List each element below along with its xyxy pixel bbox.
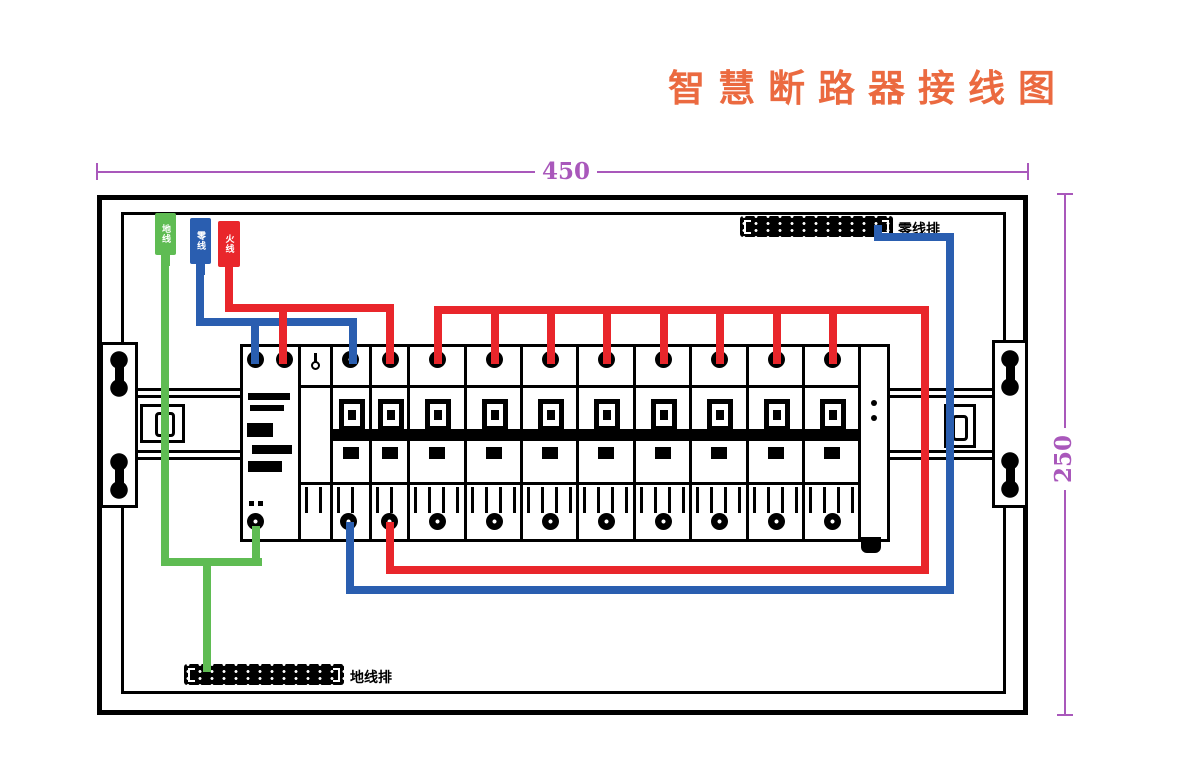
neutral-wire-segment xyxy=(946,233,954,594)
assembly-end-column xyxy=(861,347,887,539)
live-wire-segment xyxy=(225,304,394,312)
live-wire-segment xyxy=(921,306,929,574)
dimension-tick xyxy=(1057,193,1073,195)
label-print xyxy=(252,445,292,454)
live-wire-tag-label: 火线 xyxy=(225,234,234,254)
breaker-detail xyxy=(768,447,784,459)
dimension-tick xyxy=(1027,163,1029,180)
branch-breaker xyxy=(692,347,748,539)
neutral-wire-segment xyxy=(346,586,954,594)
breaker-toggle xyxy=(707,399,733,431)
live-bus-drop xyxy=(491,306,499,364)
ground-wire-tag: 地线 xyxy=(155,213,176,255)
wiring-diagram: 智慧断路器接线图 450 250 零线排 地线排 xyxy=(0,0,1181,780)
din-rail-right xyxy=(887,395,993,398)
seal-symbol xyxy=(314,353,317,362)
breaker-toggle xyxy=(764,399,790,431)
label-print xyxy=(248,393,290,400)
ground-wire-segment xyxy=(161,558,262,566)
label-print xyxy=(249,501,254,506)
breaker-detail xyxy=(598,447,614,459)
breaker-toggle xyxy=(425,399,451,431)
end-stop-hole xyxy=(952,415,968,441)
breaker-detail xyxy=(343,447,359,459)
ground-wire-tag-label: 地线 xyxy=(161,224,170,244)
din-rail-left xyxy=(137,450,241,453)
live-bus-drop xyxy=(603,306,611,364)
terminal-screw xyxy=(486,513,503,530)
breaker-detail xyxy=(429,447,445,459)
label-print xyxy=(258,501,263,506)
breaker-toggle xyxy=(378,399,404,431)
live-bus-segment xyxy=(434,306,929,314)
breaker-detail xyxy=(542,447,558,459)
terminal-screw xyxy=(711,513,728,530)
live-wire-segment xyxy=(386,566,929,574)
live-wire-segment xyxy=(279,304,287,364)
live-bus-drop xyxy=(716,306,724,364)
width-dimension-label: 450 xyxy=(535,158,597,185)
smart-breaker-pole-n xyxy=(333,347,372,539)
live-bus-drop xyxy=(829,306,837,364)
screw-dot xyxy=(871,415,877,421)
breaker-detail xyxy=(655,447,671,459)
ground-wire-segment xyxy=(252,526,260,566)
breaker-assembly xyxy=(240,344,890,542)
dimension-tick xyxy=(96,163,98,180)
breaker-detail xyxy=(824,447,840,459)
neutral-wire-segment xyxy=(349,318,357,364)
neutral-wire-segment xyxy=(874,233,954,241)
din-rail-right xyxy=(887,450,993,453)
breaker-toggle xyxy=(594,399,620,431)
branch-breaker xyxy=(579,347,635,539)
terminal-screw xyxy=(768,513,785,530)
mounting-slot-icon xyxy=(109,351,129,397)
screw-dot xyxy=(871,400,877,406)
din-rail-right xyxy=(887,457,993,460)
live-bus-drop xyxy=(773,306,781,364)
neutral-wire-tag-label: 零线 xyxy=(196,231,205,251)
neutral-wire-segment xyxy=(196,318,357,326)
branch-breaker xyxy=(467,347,523,539)
live-wire-segment xyxy=(386,304,394,364)
mounting-bracket-right xyxy=(992,340,1028,508)
mounting-slot-icon xyxy=(109,453,129,499)
breaker-toggle xyxy=(651,399,677,431)
live-bus-drop xyxy=(434,306,442,364)
din-rail-left xyxy=(137,388,241,391)
live-bus-drop xyxy=(547,306,555,364)
neutral-terminal-bar xyxy=(740,216,893,237)
smart-breaker-pole-l xyxy=(372,347,410,539)
din-rail-left xyxy=(137,457,241,460)
branch-breaker xyxy=(805,347,861,539)
aux-module xyxy=(301,347,333,539)
label-print xyxy=(247,423,273,437)
din-rail-right xyxy=(887,388,993,391)
terminal-screw xyxy=(429,513,446,530)
neutral-wire-tag: 零线 xyxy=(190,218,211,264)
neutral-wire-segment xyxy=(874,225,882,241)
branch-breaker xyxy=(636,347,692,539)
mounting-bracket-left xyxy=(100,342,138,508)
branch-breaker xyxy=(749,347,805,539)
mounting-slot-icon xyxy=(1000,452,1020,498)
ground-bar-label: 地线排 xyxy=(350,667,392,687)
branch-breaker xyxy=(410,347,466,539)
ground-wire-segment xyxy=(203,558,211,672)
height-dimension-label: 250 xyxy=(1050,428,1077,490)
terminal-screw xyxy=(824,513,841,530)
breaker-toggle xyxy=(820,399,846,431)
branch-breaker xyxy=(523,347,579,539)
live-bus-drop xyxy=(660,306,668,364)
neutral-wire-segment xyxy=(346,522,354,594)
main-breaker xyxy=(243,347,301,539)
live-wire-tag: 火线 xyxy=(218,221,240,267)
terminal-screw xyxy=(655,513,672,530)
breaker-toggle xyxy=(482,399,508,431)
breaker-detail xyxy=(486,447,502,459)
seal-symbol xyxy=(311,361,320,370)
breaker-detail xyxy=(711,447,727,459)
label-print xyxy=(248,461,282,472)
terminal-screw xyxy=(598,513,615,530)
dimension-tick xyxy=(1057,714,1073,716)
ground-wire-segment xyxy=(161,250,169,566)
mounting-tab xyxy=(861,537,881,553)
din-rail-left xyxy=(137,395,241,398)
mounting-slot-icon xyxy=(1000,350,1020,396)
page-title: 智慧断路器接线图 xyxy=(668,58,1068,112)
breaker-toggle xyxy=(538,399,564,431)
breaker-toggle xyxy=(339,399,365,431)
breaker-detail xyxy=(382,447,398,459)
neutral-wire-segment xyxy=(251,318,259,364)
terminal-screw xyxy=(542,513,559,530)
label-print xyxy=(250,405,284,411)
